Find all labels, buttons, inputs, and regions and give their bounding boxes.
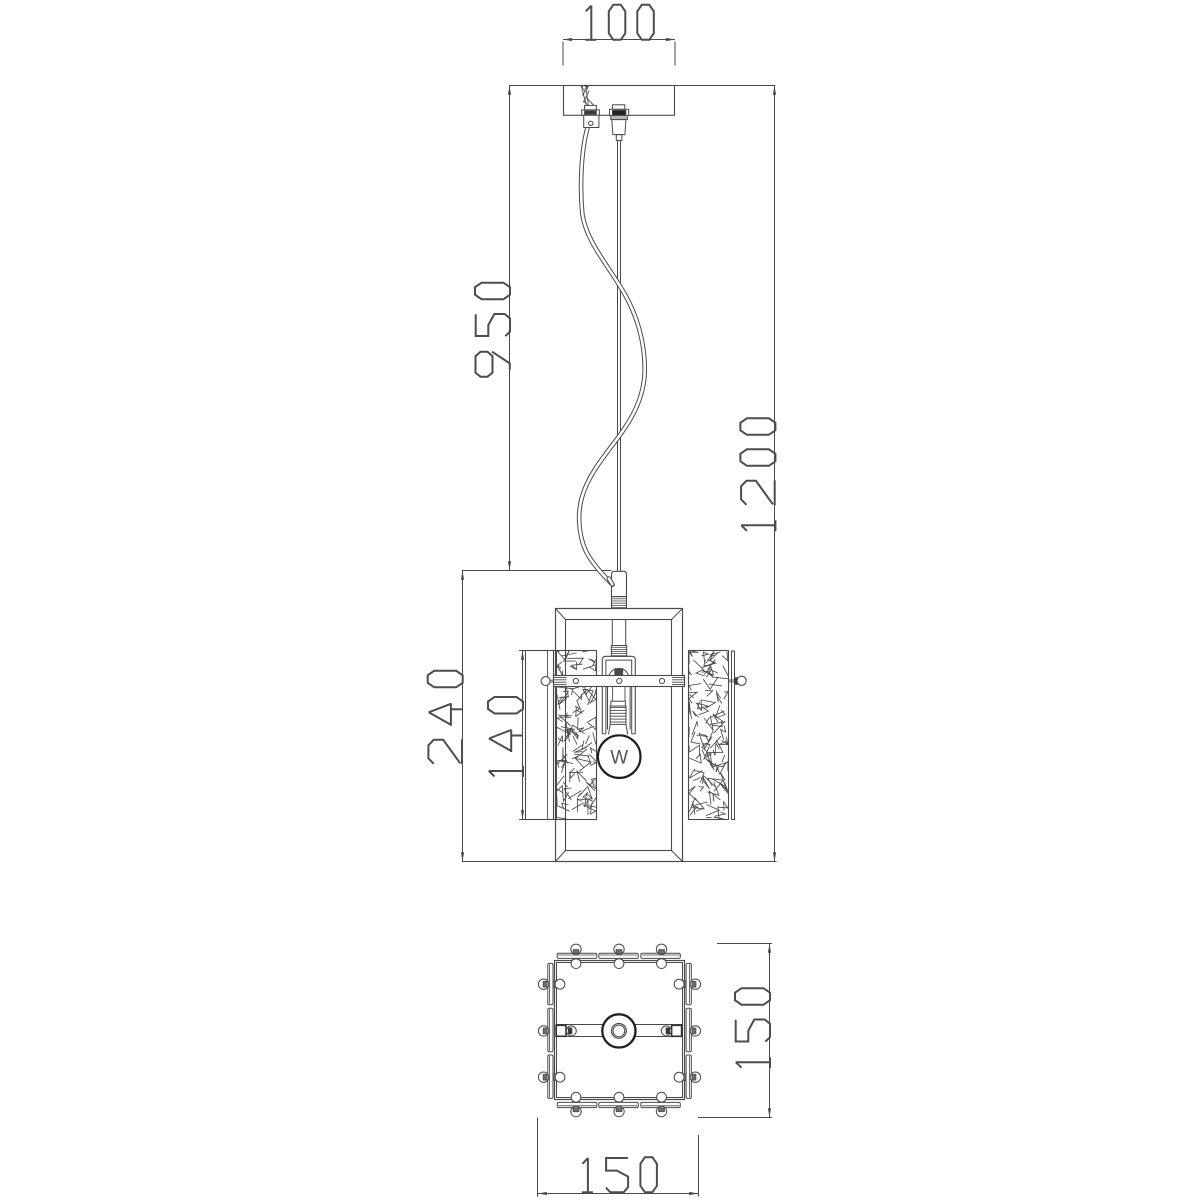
svg-text:W: W xyxy=(610,748,628,769)
